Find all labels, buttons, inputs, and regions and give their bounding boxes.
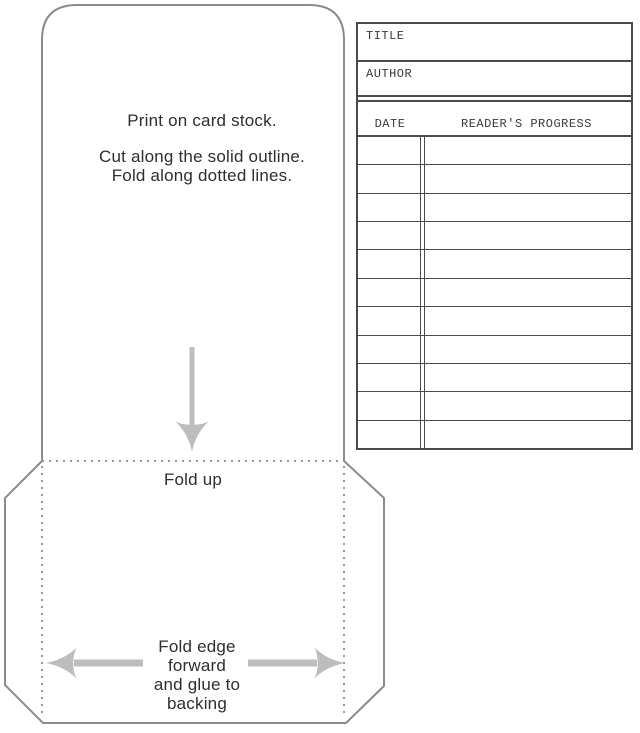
ruled-row: [358, 279, 631, 307]
progress-label: READER'S PROGRESS: [461, 117, 592, 131]
instruction-cut: Cut along the solid outline.: [52, 147, 352, 166]
glue-instructions: Fold edge forward and glue to backing: [97, 637, 297, 713]
author-field-row: AUTHOR: [358, 62, 631, 97]
date-column-header: DATE: [358, 117, 422, 135]
instruction-fold: Fold along dotted lines.: [52, 166, 352, 185]
ruled-row: [358, 250, 631, 278]
ruled-row: [358, 307, 631, 335]
ruled-row: [358, 421, 631, 448]
glue-line: Fold edge: [97, 637, 297, 656]
fold-up-label: Fold up: [42, 470, 344, 489]
glue-line: and glue to: [97, 675, 297, 694]
fold-up-arrow-icon: [175, 347, 209, 452]
ruled-rows-area: [358, 137, 631, 448]
ruled-row: [358, 336, 631, 364]
ruled-row: [358, 392, 631, 420]
instruction-print: Print on card stock.: [52, 111, 352, 130]
author-label: AUTHOR: [366, 67, 412, 81]
ruled-row: [358, 222, 631, 250]
title-label: TITLE: [366, 29, 405, 43]
printable-template-page: Print on card stock. Cut along the solid…: [0, 0, 640, 733]
title-field-row: TITLE: [358, 24, 631, 62]
ruled-row: [358, 364, 631, 392]
pocket-instructions: Print on card stock. Cut along the solid…: [52, 111, 352, 185]
glue-line: backing: [97, 694, 297, 713]
ruled-row: [358, 137, 631, 165]
ruled-row: [358, 165, 631, 193]
progress-column-header: READER'S PROGRESS: [422, 117, 631, 135]
library-card: TITLE AUTHOR DATE READER'S PROGRESS: [356, 22, 633, 450]
date-column-divider: [420, 137, 425, 448]
glue-line: forward: [97, 656, 297, 675]
date-label: DATE: [375, 117, 406, 131]
ruled-row: [358, 194, 631, 222]
table-header-row: DATE READER'S PROGRESS: [358, 102, 631, 137]
